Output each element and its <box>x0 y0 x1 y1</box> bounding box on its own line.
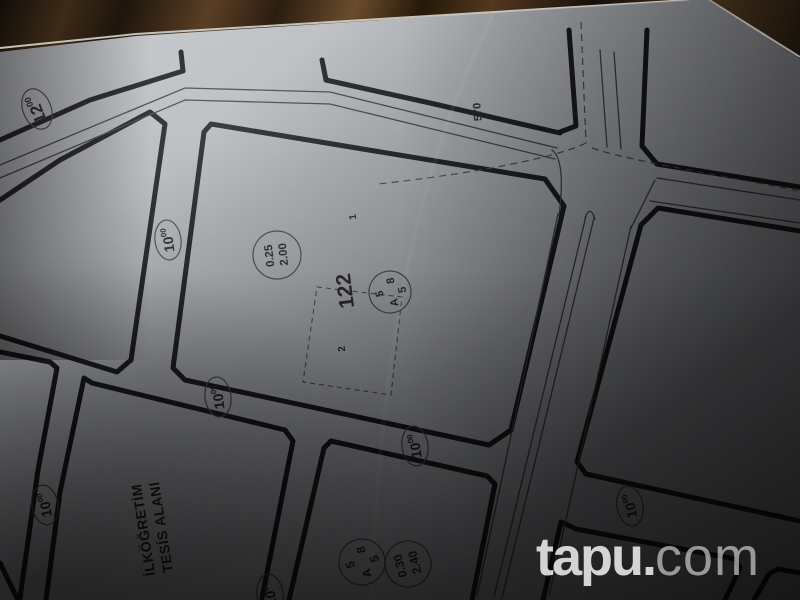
zoning-plan-photo: 1200 1000 1000 1000 1000 1000 1000 0. <box>0 0 800 600</box>
tapu-watermark: tapu.com <box>536 527 760 587</box>
photo-lighting <box>0 0 800 600</box>
